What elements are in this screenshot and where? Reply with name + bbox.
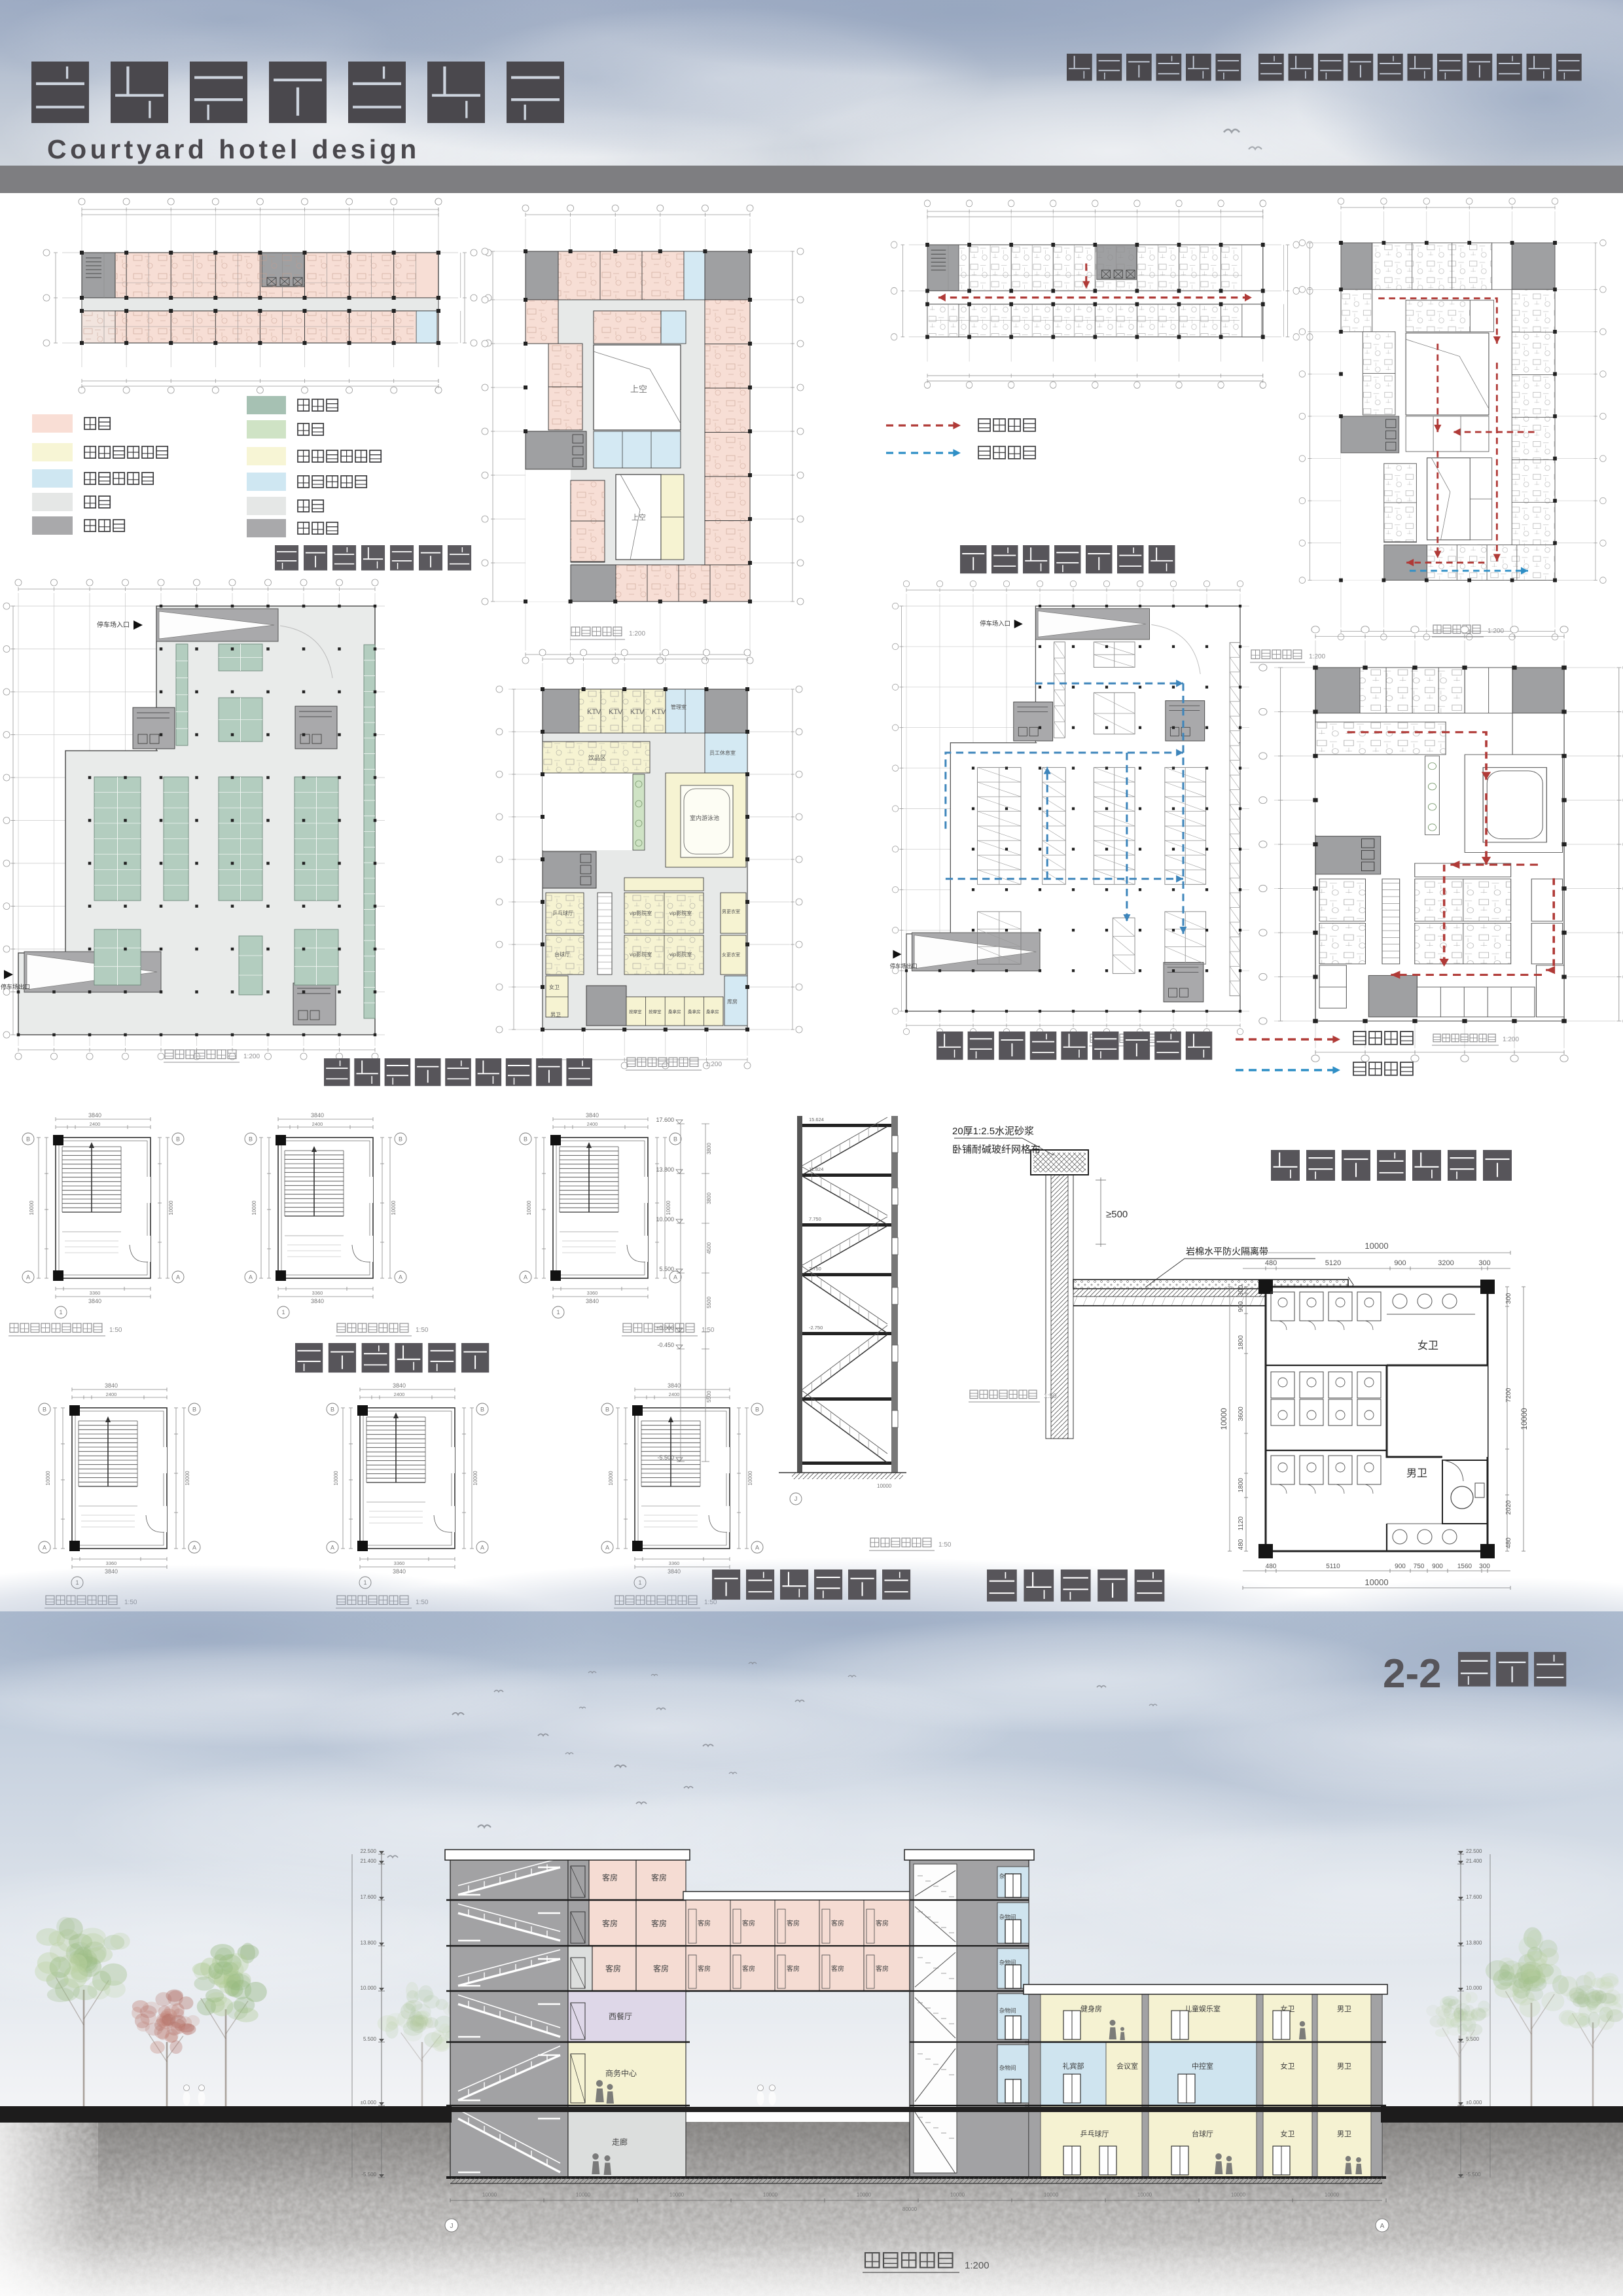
svg-text:750: 750	[1414, 1563, 1425, 1570]
svg-text:A: A	[330, 1545, 334, 1551]
svg-text:KTV: KTV	[609, 708, 623, 716]
svg-text:1:50: 1:50	[702, 1327, 715, 1334]
svg-text:5120: 5120	[1325, 1259, 1341, 1267]
svg-text:女卫: 女卫	[549, 984, 560, 990]
svg-text:2400: 2400	[90, 1121, 101, 1127]
svg-text:13.800: 13.800	[361, 1940, 377, 1946]
svg-text:3840: 3840	[586, 1112, 599, 1119]
svg-text:vip影院室: vip影院室	[630, 910, 652, 916]
svg-text:1:50: 1:50	[938, 1541, 952, 1549]
svg-text:1560: 1560	[1457, 1563, 1472, 1570]
svg-text:3840: 3840	[88, 1112, 101, 1119]
svg-text:17.600: 17.600	[361, 1894, 377, 1900]
svg-text:10000: 10000	[185, 1471, 190, 1486]
svg-text:杂物间: 杂物间	[999, 2065, 1016, 2072]
svg-text:900: 900	[1394, 1259, 1406, 1267]
svg-text:KTV: KTV	[630, 708, 645, 716]
svg-text:3360: 3360	[312, 1290, 323, 1296]
svg-text:女卫: 女卫	[1418, 1339, 1438, 1352]
svg-text:3840: 3840	[311, 1298, 324, 1304]
svg-text:按摩室: 按摩室	[629, 1009, 642, 1014]
svg-text:停车场出口: 停车场出口	[890, 963, 918, 969]
svg-text:17.600: 17.600	[1466, 1894, 1482, 1900]
svg-text:3200: 3200	[1438, 1259, 1454, 1267]
svg-text:西餐厅: 西餐厅	[609, 2011, 632, 2021]
svg-text:礼宾部: 礼宾部	[1063, 2062, 1084, 2071]
svg-text:3840: 3840	[393, 1382, 406, 1389]
svg-text:客房: 客房	[602, 1918, 618, 1928]
svg-text:A: A	[524, 1274, 527, 1281]
svg-text:3360: 3360	[587, 1290, 598, 1296]
svg-text:乒乓球厅: 乒乓球厅	[1080, 2129, 1109, 2138]
svg-text:≥500: ≥500	[1106, 1209, 1128, 1220]
svg-text:女更衣室: 女更衣室	[722, 952, 740, 958]
svg-text:B: B	[605, 1407, 609, 1413]
svg-text:1: 1	[59, 1309, 62, 1316]
svg-text:480: 480	[1238, 1539, 1245, 1550]
svg-text:7200: 7200	[1505, 1388, 1512, 1403]
svg-text:-5.500: -5.500	[361, 2172, 376, 2178]
svg-text:A: A	[176, 1274, 180, 1281]
svg-text:900: 900	[1395, 1563, 1406, 1570]
svg-text:10000: 10000	[1325, 2192, 1340, 2198]
svg-text:女卫: 女卫	[1281, 2062, 1295, 2071]
svg-text:客房: 客房	[876, 1965, 889, 1973]
svg-text:1:200: 1:200	[705, 1061, 722, 1068]
svg-text:2-2: 2-2	[1383, 1651, 1442, 1696]
svg-text:5.500: 5.500	[659, 1266, 674, 1272]
svg-text:10000: 10000	[29, 1200, 35, 1215]
svg-text:客房: 客房	[698, 1919, 711, 1928]
svg-text:B: B	[524, 1136, 527, 1143]
svg-text:-0.450: -0.450	[657, 1342, 674, 1348]
svg-text:2400: 2400	[394, 1391, 405, 1397]
svg-text:客房: 客房	[831, 1919, 844, 1928]
svg-text:±0.000: ±0.000	[1466, 2100, 1482, 2106]
svg-text:1800: 1800	[1238, 1478, 1245, 1493]
svg-text:走廊: 走廊	[612, 2137, 628, 2147]
svg-text:3800: 3800	[706, 1193, 712, 1204]
svg-text:17.600: 17.600	[656, 1117, 674, 1123]
svg-text:5500: 5500	[706, 1297, 712, 1308]
svg-text:900: 900	[1432, 1563, 1443, 1570]
svg-text:-2.750: -2.750	[809, 1325, 823, 1331]
svg-text:3840: 3840	[311, 1112, 324, 1119]
svg-text:3360: 3360	[106, 1560, 117, 1566]
svg-text:480: 480	[1505, 1537, 1512, 1549]
svg-text:桑拿房: 桑拿房	[688, 1009, 701, 1014]
svg-text:10000: 10000	[763, 2192, 778, 2198]
svg-text:男卫: 男卫	[1337, 2130, 1351, 2138]
svg-text:男卫: 男卫	[550, 1012, 561, 1018]
svg-text:客房: 客房	[602, 1873, 618, 1882]
svg-text:客房: 客房	[787, 1919, 800, 1928]
svg-text:儿童娱乐室: 儿童娱乐室	[1185, 2004, 1221, 2013]
svg-text:10000: 10000	[473, 1471, 478, 1486]
svg-text:桑拿房: 桑拿房	[668, 1009, 681, 1014]
svg-text:-5.500: -5.500	[1466, 2172, 1481, 2178]
svg-text:管理室: 管理室	[671, 704, 687, 710]
svg-text:300: 300	[1479, 1563, 1490, 1570]
svg-text:A: A	[399, 1274, 402, 1281]
svg-text:停车场入口: 停车场入口	[980, 620, 1010, 627]
svg-text:1800: 1800	[1238, 1335, 1245, 1350]
svg-text:A: A	[26, 1274, 30, 1281]
svg-text:B: B	[673, 1136, 677, 1143]
svg-text:10000: 10000	[168, 1200, 174, 1215]
svg-text:Courtyard hotel design: Courtyard hotel design	[47, 134, 420, 164]
svg-text:10000: 10000	[669, 2192, 685, 2198]
svg-text:客房: 客房	[742, 1965, 755, 1973]
svg-text:10000: 10000	[1520, 1408, 1529, 1430]
svg-text:7.750: 7.750	[809, 1216, 821, 1222]
svg-text:J: J	[794, 1496, 798, 1502]
svg-text:女卫: 女卫	[1281, 2129, 1295, 2138]
svg-text:20厚1:2.5水泥砂浆: 20厚1:2.5水泥砂浆	[952, 1125, 1034, 1137]
svg-text:11.824: 11.824	[809, 1166, 823, 1172]
svg-text:vip影院室: vip影院室	[669, 951, 692, 958]
svg-text:客房: 客房	[651, 1918, 667, 1928]
svg-text:10000: 10000	[482, 2192, 497, 2198]
svg-text:4500: 4500	[706, 1242, 712, 1254]
svg-text:80000: 80000	[902, 2206, 918, 2212]
svg-text:库房: 库房	[727, 998, 738, 1005]
svg-text:3360: 3360	[394, 1560, 405, 1566]
svg-text:B: B	[192, 1407, 196, 1413]
svg-text:室内游泳池: 室内游泳池	[690, 814, 719, 821]
svg-text:男卫: 男卫	[1337, 2005, 1351, 2013]
svg-text:10000: 10000	[1044, 2192, 1059, 2198]
svg-text:1:200: 1:200	[1503, 1036, 1519, 1043]
svg-text:B: B	[176, 1136, 180, 1143]
svg-text:乒乓球厅: 乒乓球厅	[552, 910, 573, 916]
svg-text:300: 300	[1238, 1285, 1245, 1296]
svg-text:5500: 5500	[706, 1391, 712, 1403]
svg-text:900: 900	[1238, 1301, 1245, 1312]
svg-text:5.500: 5.500	[1466, 2036, 1480, 2042]
svg-text:1:50: 1:50	[1044, 1393, 1057, 1400]
svg-text:岩棉水平防火隔离带: 岩棉水平防火隔离带	[1186, 1246, 1268, 1257]
svg-text:B: B	[755, 1407, 759, 1413]
svg-text:客房: 客房	[787, 1965, 800, 1973]
svg-text:客房: 客房	[698, 1965, 711, 1973]
svg-text:健身房: 健身房	[1080, 2004, 1102, 2013]
svg-text:10000: 10000	[1219, 1408, 1228, 1430]
svg-text:客房: 客房	[742, 1919, 755, 1928]
svg-text:客房: 客房	[876, 1919, 889, 1928]
svg-text:5.500: 5.500	[363, 2036, 377, 2042]
svg-text:桑拿房: 桑拿房	[706, 1009, 719, 1014]
svg-text:10000: 10000	[576, 2192, 591, 2198]
svg-text:10000: 10000	[1364, 1241, 1388, 1251]
svg-text:客房: 客房	[653, 1964, 669, 1973]
svg-text:±0.000: ±0.000	[656, 1325, 674, 1331]
svg-text:男卫: 男卫	[1337, 2063, 1351, 2071]
svg-text:10000: 10000	[608, 1471, 614, 1486]
svg-text:1: 1	[556, 1309, 560, 1316]
svg-text:2400: 2400	[106, 1391, 117, 1397]
svg-text:A: A	[673, 1274, 677, 1281]
svg-text:KTV: KTV	[587, 708, 601, 716]
svg-text:10000: 10000	[251, 1200, 257, 1215]
svg-text:10000: 10000	[1231, 2192, 1246, 2198]
svg-text:客房: 客房	[605, 1964, 621, 1973]
svg-text:1:200: 1:200	[243, 1053, 260, 1060]
svg-text:商务中心: 商务中心	[605, 2068, 637, 2078]
svg-text:台球厅: 台球厅	[1192, 2129, 1213, 2138]
svg-text:1:50: 1:50	[416, 1327, 429, 1334]
svg-text:2400: 2400	[669, 1391, 680, 1397]
svg-text:10000: 10000	[857, 2192, 872, 2198]
svg-text:22.500: 22.500	[1466, 1848, 1482, 1854]
svg-text:B: B	[399, 1136, 402, 1143]
svg-text:13.800: 13.800	[656, 1166, 674, 1173]
svg-text:±0.000: ±0.000	[361, 2100, 377, 2106]
svg-text:3840: 3840	[586, 1298, 599, 1304]
svg-text:A: A	[605, 1545, 609, 1551]
svg-text:10000: 10000	[45, 1471, 51, 1486]
svg-text:2400: 2400	[587, 1121, 598, 1127]
svg-text:上空: 上空	[632, 512, 646, 522]
svg-text:卧铺耐碱玻纤网格布: 卧铺耐碱玻纤网格布	[952, 1144, 1041, 1155]
svg-text:B: B	[480, 1407, 484, 1413]
svg-text:5110: 5110	[1326, 1563, 1340, 1570]
svg-text:A: A	[43, 1545, 46, 1551]
svg-text:按摩室: 按摩室	[649, 1009, 662, 1014]
svg-text:A: A	[480, 1545, 484, 1551]
svg-text:10.000: 10.000	[656, 1216, 674, 1223]
svg-text:15.624: 15.624	[809, 1117, 824, 1122]
svg-text:10000: 10000	[391, 1200, 397, 1215]
svg-text:2.750: 2.750	[809, 1266, 821, 1272]
svg-text:客房: 客房	[651, 1873, 667, 1882]
svg-text:-5.500: -5.500	[657, 1454, 674, 1461]
svg-text:vip影院室: vip影院室	[630, 951, 652, 958]
svg-text:1: 1	[281, 1309, 285, 1316]
svg-text:480: 480	[1265, 1259, 1277, 1267]
svg-text:1:200: 1:200	[629, 630, 645, 637]
svg-text:10000: 10000	[950, 2192, 965, 2198]
svg-text:杂物间: 杂物间	[999, 2007, 1016, 2014]
svg-text:10000: 10000	[1137, 2192, 1152, 2198]
svg-text:1:200: 1:200	[1309, 653, 1325, 660]
svg-text:1120: 1120	[1238, 1516, 1245, 1531]
svg-text:300: 300	[1505, 1293, 1512, 1304]
svg-text:J: J	[450, 2223, 454, 2230]
svg-text:饮品区: 饮品区	[588, 754, 606, 761]
svg-text:1:200: 1:200	[1488, 628, 1504, 635]
svg-text:vip影院室: vip影院室	[669, 910, 692, 916]
svg-text:男更衣室: 男更衣室	[722, 908, 740, 914]
svg-text:10000: 10000	[526, 1200, 532, 1215]
svg-text:10000: 10000	[877, 1483, 892, 1489]
svg-text:男卫: 男卫	[1406, 1468, 1427, 1479]
svg-text:A: A	[755, 1545, 759, 1551]
svg-text:KTV: KTV	[652, 708, 666, 716]
svg-text:21.400: 21.400	[361, 1858, 377, 1864]
svg-text:480: 480	[1266, 1563, 1277, 1570]
svg-text:A: A	[192, 1545, 196, 1551]
svg-text:10.000: 10.000	[361, 1985, 377, 1991]
svg-text:停车场入口: 停车场入口	[97, 620, 130, 629]
svg-text:上空: 上空	[630, 384, 647, 394]
svg-text:3840: 3840	[393, 1568, 406, 1575]
svg-text:3840: 3840	[88, 1298, 101, 1304]
svg-text:3600: 3600	[1238, 1407, 1245, 1422]
svg-text:3840: 3840	[105, 1382, 118, 1389]
svg-text:A: A	[249, 1274, 253, 1281]
svg-text:2020: 2020	[1505, 1500, 1512, 1515]
svg-text:10000: 10000	[666, 1200, 671, 1215]
svg-text:22.500: 22.500	[361, 1848, 377, 1854]
svg-text:B: B	[249, 1136, 253, 1143]
svg-text:10000: 10000	[747, 1471, 753, 1486]
svg-text:B: B	[26, 1136, 30, 1143]
svg-text:2400: 2400	[312, 1121, 323, 1127]
svg-text:3840: 3840	[668, 1382, 681, 1389]
svg-text:会议室: 会议室	[1116, 2062, 1138, 2071]
svg-text:10.000: 10.000	[1466, 1985, 1482, 1991]
svg-text:3800: 3800	[706, 1143, 712, 1155]
svg-text:B: B	[330, 1407, 334, 1413]
svg-text:300: 300	[1478, 1259, 1490, 1267]
svg-text:B: B	[43, 1407, 46, 1413]
svg-text:21.400: 21.400	[1466, 1858, 1482, 1864]
svg-text:停车场出口: 停车场出口	[1, 983, 30, 990]
svg-text:1:200: 1:200	[965, 2260, 990, 2271]
svg-text:1:50: 1:50	[109, 1327, 122, 1334]
svg-text:中控室: 中控室	[1192, 2062, 1213, 2071]
svg-text:13.800: 13.800	[1466, 1940, 1482, 1946]
svg-text:A: A	[1380, 2223, 1385, 2230]
svg-text:员工休息室: 员工休息室	[709, 749, 736, 756]
svg-text:台球厅: 台球厅	[554, 951, 570, 958]
svg-text:客房: 客房	[831, 1965, 844, 1973]
svg-text:10000: 10000	[333, 1471, 339, 1486]
svg-text:3360: 3360	[90, 1290, 101, 1296]
